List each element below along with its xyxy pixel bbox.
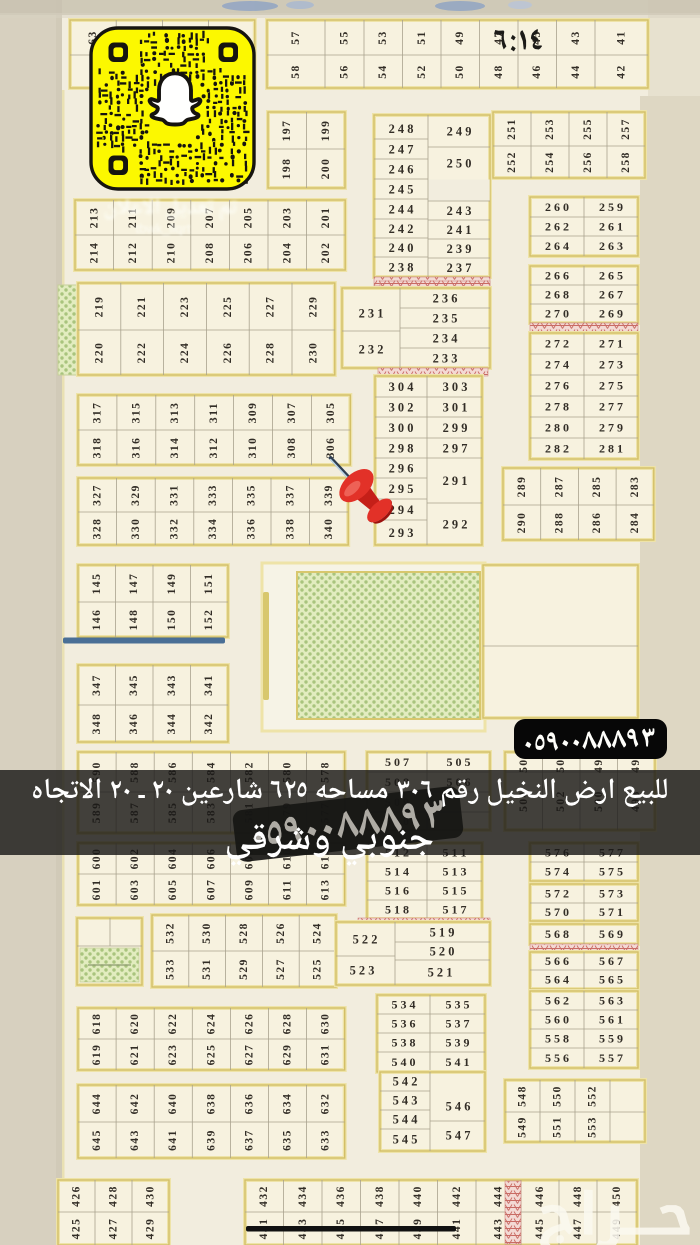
svg-text:622: 622 <box>167 1013 179 1035</box>
svg-text:229: 229 <box>307 296 319 318</box>
svg-text:636: 636 <box>243 1093 255 1115</box>
svg-text:335: 335 <box>246 484 258 506</box>
svg-text:5 7 3: 5 7 3 <box>599 887 623 901</box>
svg-text:328: 328 <box>91 518 103 540</box>
svg-text:609: 609 <box>243 879 255 901</box>
svg-text:204: 204 <box>281 242 293 264</box>
svg-text:532: 532 <box>164 922 176 944</box>
svg-text:5 4 2: 5 4 2 <box>393 1074 418 1088</box>
svg-text:2 4 3: 2 4 3 <box>447 204 472 218</box>
svg-text:5 4 1: 5 4 1 <box>446 1055 470 1069</box>
svg-text:5 6 1: 5 6 1 <box>599 1013 623 1027</box>
svg-text:525: 525 <box>312 958 324 980</box>
svg-text:5 3 7: 5 3 7 <box>446 1017 470 1031</box>
svg-text:342: 342 <box>203 713 215 735</box>
svg-text:2 6 5: 2 6 5 <box>599 269 623 283</box>
svg-text:624: 624 <box>205 1013 217 1035</box>
svg-text:5 4 7: 5 4 7 <box>446 1128 471 1142</box>
svg-text:2 7 7: 2 7 7 <box>599 400 623 414</box>
svg-text:2 3 5: 2 3 5 <box>433 311 458 325</box>
svg-text:5 5 7: 5 5 7 <box>599 1051 623 1065</box>
svg-text:44: 44 <box>570 64 582 79</box>
svg-text:603: 603 <box>129 879 141 901</box>
svg-text:227: 227 <box>265 296 277 318</box>
svg-text:641: 641 <box>167 1129 179 1151</box>
svg-text:258: 258 <box>620 151 632 173</box>
svg-text:611: 611 <box>282 879 294 900</box>
svg-text:5 2 3: 5 2 3 <box>350 963 375 977</box>
svg-text:5 7 1: 5 7 1 <box>599 905 623 919</box>
svg-text:151: 151 <box>203 573 215 595</box>
svg-text:533: 533 <box>164 958 176 980</box>
svg-text:605: 605 <box>167 879 179 901</box>
svg-text:207: 207 <box>204 207 216 229</box>
svg-text:336: 336 <box>246 518 258 540</box>
svg-text:527: 527 <box>275 958 287 980</box>
svg-text:329: 329 <box>130 484 142 506</box>
svg-text:644: 644 <box>91 1093 103 1115</box>
svg-text:225: 225 <box>222 296 234 318</box>
svg-text:43: 43 <box>570 30 582 45</box>
svg-text:5 3 6: 5 3 6 <box>392 1017 416 1031</box>
svg-text:626: 626 <box>243 1013 255 1035</box>
svg-text:5 1 7: 5 1 7 <box>443 903 467 917</box>
svg-text:528: 528 <box>238 922 250 944</box>
svg-text:425: 425 <box>71 1218 83 1240</box>
svg-text:5 4 6: 5 4 6 <box>446 1099 471 1113</box>
svg-text:339: 339 <box>323 484 335 506</box>
svg-text:2 7 2: 2 7 2 <box>545 337 569 351</box>
svg-text:618: 618 <box>91 1013 103 1035</box>
svg-text:252: 252 <box>506 151 518 173</box>
svg-text:526: 526 <box>275 922 287 944</box>
svg-text:530: 530 <box>201 922 213 944</box>
svg-text:2 9 2: 2 9 2 <box>443 517 468 531</box>
svg-text:5 0 5: 5 0 5 <box>447 755 471 769</box>
svg-text:200: 200 <box>320 158 332 180</box>
svg-text:254: 254 <box>544 151 556 173</box>
svg-text:2 4 7: 2 4 7 <box>389 142 414 156</box>
svg-text:524: 524 <box>312 922 324 944</box>
svg-text:46: 46 <box>531 64 543 79</box>
svg-text:51: 51 <box>416 30 428 45</box>
svg-text:198: 198 <box>281 158 293 180</box>
svg-text:621: 621 <box>129 1044 141 1066</box>
svg-text:2 7 5: 2 7 5 <box>599 379 623 393</box>
svg-text:313: 313 <box>169 402 181 424</box>
svg-text:147: 147 <box>128 573 140 595</box>
svg-text:289: 289 <box>516 476 528 498</box>
svg-text:5 1 5: 5 1 5 <box>443 884 467 898</box>
svg-text:284: 284 <box>629 512 641 534</box>
svg-text:5 5 6: 5 5 6 <box>545 1051 569 1065</box>
svg-text:251: 251 <box>506 118 518 140</box>
svg-text:199: 199 <box>320 120 332 142</box>
svg-text:344: 344 <box>166 713 178 735</box>
svg-text:346: 346 <box>128 713 140 735</box>
svg-text:53: 53 <box>377 30 389 45</box>
svg-text:5 6 5: 5 6 5 <box>599 973 623 987</box>
svg-text:5 2 2: 5 2 2 <box>353 932 378 946</box>
svg-text:426: 426 <box>71 1185 83 1207</box>
svg-text:5 4 5: 5 4 5 <box>393 1132 418 1146</box>
svg-text:3 0 1: 3 0 1 <box>443 400 468 414</box>
svg-text:2 3 9: 2 3 9 <box>447 242 472 256</box>
svg-text:2 7 0: 2 7 0 <box>545 307 569 321</box>
svg-text:312: 312 <box>208 437 220 459</box>
svg-text:432: 432 <box>258 1185 270 1207</box>
svg-text:3 0 0: 3 0 0 <box>389 421 414 435</box>
svg-text:3 0 3: 3 0 3 <box>443 380 468 394</box>
svg-text:256: 256 <box>582 151 594 173</box>
svg-text:146: 146 <box>91 609 103 631</box>
svg-text:5 3 9: 5 3 9 <box>446 1036 470 1050</box>
svg-text:2 7 6: 2 7 6 <box>545 379 569 393</box>
svg-text:2 9 3: 2 9 3 <box>389 526 414 540</box>
svg-text:2 3 1: 2 3 1 <box>359 306 384 320</box>
svg-text:286: 286 <box>591 512 603 534</box>
svg-text:620: 620 <box>129 1013 141 1035</box>
svg-text:5 6 2: 5 6 2 <box>545 994 569 1008</box>
svg-text:334: 334 <box>207 518 219 540</box>
svg-text:5 1 8: 5 1 8 <box>385 903 409 917</box>
svg-text:2 8 0: 2 8 0 <box>545 421 569 435</box>
svg-text:5 3 8: 5 3 8 <box>392 1036 416 1050</box>
svg-text:2 6 2: 2 6 2 <box>545 220 569 234</box>
svg-text:642: 642 <box>129 1093 141 1115</box>
svg-text:434: 434 <box>297 1185 309 1207</box>
svg-text:152: 152 <box>203 609 215 631</box>
svg-text:2 6 0: 2 6 0 <box>545 200 569 214</box>
svg-text:332: 332 <box>169 518 181 540</box>
svg-text:285: 285 <box>591 476 603 498</box>
svg-text:212: 212 <box>127 242 139 264</box>
svg-text:643: 643 <box>129 1129 141 1151</box>
svg-text:219: 219 <box>93 296 105 318</box>
svg-text:2 4 0: 2 4 0 <box>389 241 414 255</box>
svg-text:305: 305 <box>325 402 337 424</box>
svg-text:450: 450 <box>611 1185 623 1207</box>
svg-text:2 6 6: 2 6 6 <box>545 269 569 283</box>
svg-text:333: 333 <box>207 484 219 506</box>
svg-text:150: 150 <box>166 609 178 631</box>
svg-text:340: 340 <box>323 518 335 540</box>
svg-text:601: 601 <box>91 879 103 901</box>
svg-text:5 1 6: 5 1 6 <box>385 884 409 898</box>
svg-text:222: 222 <box>136 342 148 364</box>
svg-text:625: 625 <box>205 1044 217 1066</box>
svg-text:2 4 4: 2 4 4 <box>389 202 414 216</box>
svg-text:288: 288 <box>554 512 566 534</box>
svg-text:318: 318 <box>92 437 104 459</box>
svg-text:54: 54 <box>377 64 389 79</box>
svg-text:2 9 7: 2 9 7 <box>443 441 468 455</box>
svg-text:201: 201 <box>320 207 332 229</box>
svg-text:308: 308 <box>286 437 298 459</box>
svg-text:5 7 4: 5 7 4 <box>545 865 569 879</box>
svg-text:5 6 3: 5 6 3 <box>599 994 623 1008</box>
svg-text:436: 436 <box>335 1185 347 1207</box>
svg-text:430: 430 <box>145 1185 157 1207</box>
svg-text:2 6 8: 2 6 8 <box>545 288 569 302</box>
svg-text:5 6 0: 5 6 0 <box>545 1013 569 1027</box>
svg-text:56: 56 <box>339 64 351 79</box>
svg-text:230: 230 <box>307 342 319 364</box>
svg-text:442: 442 <box>451 1185 463 1207</box>
svg-text:310: 310 <box>247 437 259 459</box>
svg-text:5 1 4: 5 1 4 <box>385 865 409 879</box>
svg-text:314: 314 <box>169 437 181 459</box>
svg-text:2 3 4: 2 3 4 <box>433 331 458 345</box>
svg-text:619: 619 <box>91 1044 103 1066</box>
svg-text:5 6 4: 5 6 4 <box>545 973 569 987</box>
svg-text:220: 220 <box>93 342 105 364</box>
svg-text:630: 630 <box>320 1013 332 1035</box>
svg-text:440: 440 <box>412 1185 424 1207</box>
svg-text:5 5 8: 5 5 8 <box>545 1032 569 1046</box>
svg-text:2 7 4: 2 7 4 <box>545 358 569 372</box>
svg-text:214: 214 <box>88 242 100 264</box>
svg-text:2 9 6: 2 9 6 <box>389 461 414 475</box>
svg-text:3 0 4: 3 0 4 <box>389 380 414 394</box>
svg-text:347: 347 <box>91 674 103 696</box>
svg-text:331: 331 <box>169 484 181 506</box>
svg-text:197: 197 <box>281 120 293 142</box>
svg-text:221: 221 <box>136 296 148 318</box>
svg-text:5 6 6: 5 6 6 <box>545 954 569 968</box>
svg-text:552: 552 <box>587 1085 599 1107</box>
svg-text:42: 42 <box>616 64 628 79</box>
svg-text:228: 228 <box>265 342 277 364</box>
svg-text:50: 50 <box>454 64 466 79</box>
svg-text:550: 550 <box>552 1085 564 1107</box>
svg-text:283: 283 <box>629 476 641 498</box>
svg-text:551: 551 <box>552 1116 564 1138</box>
svg-text:338: 338 <box>284 518 296 540</box>
svg-text:2 3 7: 2 3 7 <box>447 261 472 275</box>
svg-text:337: 337 <box>284 484 296 506</box>
svg-text:49: 49 <box>454 30 466 45</box>
svg-text:41: 41 <box>616 30 628 45</box>
svg-text:444: 444 <box>493 1185 505 1207</box>
svg-text:48: 48 <box>493 64 505 79</box>
svg-text:5 4 4: 5 4 4 <box>393 1112 418 1126</box>
svg-text:2 3 2: 2 3 2 <box>359 342 384 356</box>
svg-text:5 6 8: 5 6 8 <box>545 927 569 941</box>
svg-text:52: 52 <box>416 64 428 79</box>
svg-text:5 1 9: 5 1 9 <box>430 925 455 939</box>
svg-text:2 5 9: 2 5 9 <box>599 200 623 214</box>
svg-text:5 5 9: 5 5 9 <box>599 1032 623 1046</box>
svg-text:315: 315 <box>130 402 142 424</box>
svg-text:633: 633 <box>320 1129 332 1151</box>
svg-text:631: 631 <box>320 1044 332 1066</box>
svg-text:2 7 8: 2 7 8 <box>545 400 569 414</box>
svg-text:5 3 4: 5 3 4 <box>392 998 416 1012</box>
svg-text:2 6 7: 2 6 7 <box>599 288 623 302</box>
svg-text:203: 203 <box>281 207 293 229</box>
svg-text:2 9 1: 2 9 1 <box>443 474 468 488</box>
svg-text:443: 443 <box>493 1218 505 1240</box>
svg-text:429: 429 <box>145 1218 157 1240</box>
svg-text:287: 287 <box>554 476 566 498</box>
svg-text:311: 311 <box>208 402 220 423</box>
svg-text:632: 632 <box>320 1093 332 1115</box>
svg-text:2 7 1: 2 7 1 <box>599 337 623 351</box>
svg-text:208: 208 <box>204 242 216 264</box>
svg-text:2 4 8: 2 4 8 <box>389 122 414 136</box>
svg-text:2 9 5: 2 9 5 <box>389 482 414 496</box>
svg-text:447: 447 <box>572 1218 584 1240</box>
svg-text:2 9 8: 2 9 8 <box>389 441 414 455</box>
svg-text:253: 253 <box>544 118 556 140</box>
svg-text:2 4 6: 2 4 6 <box>389 162 414 176</box>
svg-text:613: 613 <box>320 879 332 901</box>
svg-text:2 4 5: 2 4 5 <box>389 182 414 196</box>
svg-text:637: 637 <box>243 1129 255 1151</box>
svg-text:148: 148 <box>128 609 140 631</box>
svg-text:306: 306 <box>325 437 337 459</box>
svg-text:2 8 1: 2 8 1 <box>599 442 623 456</box>
svg-text:345: 345 <box>128 674 140 696</box>
svg-text:tbwk_llqrt: tbwk_llqrt <box>136 221 191 236</box>
svg-text:2 9 9: 2 9 9 <box>443 421 468 435</box>
svg-text:5 2 1: 5 2 1 <box>428 965 453 979</box>
svg-text:438: 438 <box>374 1185 386 1207</box>
svg-text:2 3 3: 2 3 3 <box>433 351 458 365</box>
svg-text:446: 446 <box>534 1185 546 1207</box>
svg-text:5 7 5: 5 7 5 <box>599 865 623 879</box>
svg-text:634: 634 <box>282 1093 294 1115</box>
svg-text:2 4 9: 2 4 9 <box>447 124 472 138</box>
svg-text:223: 223 <box>179 296 191 318</box>
svg-text:213: 213 <box>88 207 100 229</box>
svg-text:2 3 6: 2 3 6 <box>433 291 458 305</box>
svg-text:628: 628 <box>282 1013 294 1035</box>
svg-text:638: 638 <box>205 1093 217 1115</box>
svg-text:55: 55 <box>339 30 351 45</box>
svg-text:640: 640 <box>167 1093 179 1115</box>
svg-text:5 3 5: 5 3 5 <box>446 998 470 1012</box>
svg-text:549: 549 <box>517 1116 529 1138</box>
svg-text:2 4 2: 2 4 2 <box>389 222 414 236</box>
svg-text:330: 330 <box>130 518 142 540</box>
svg-text:639: 639 <box>205 1129 217 1151</box>
svg-text:629: 629 <box>282 1044 294 1066</box>
svg-text:635: 635 <box>282 1129 294 1151</box>
svg-text:548: 548 <box>517 1085 529 1107</box>
svg-text:309: 309 <box>247 402 259 424</box>
svg-text:341: 341 <box>203 674 215 696</box>
svg-text:2 6 1: 2 6 1 <box>599 220 623 234</box>
svg-text:226: 226 <box>222 342 234 364</box>
svg-text:5 4 3: 5 4 3 <box>393 1093 418 1107</box>
svg-text:3 0 2: 3 0 2 <box>389 400 414 414</box>
svg-text:5 0 7: 5 0 7 <box>385 755 409 769</box>
svg-text:316: 316 <box>130 437 142 459</box>
svg-text:5 4 0: 5 4 0 <box>392 1055 416 1069</box>
svg-text:2 7 3: 2 7 3 <box>599 358 623 372</box>
svg-text:427: 427 <box>108 1218 120 1240</box>
svg-text:2 4 1: 2 4 1 <box>447 223 472 237</box>
svg-text:5 2 0: 5 2 0 <box>430 944 455 958</box>
svg-text:205: 205 <box>243 207 255 229</box>
svg-text:2 6 3: 2 6 3 <box>599 239 623 253</box>
svg-text:2 8 2: 2 8 2 <box>545 442 569 456</box>
svg-text:343: 343 <box>166 674 178 696</box>
svg-text:5 7 0: 5 7 0 <box>545 905 569 919</box>
svg-text:2 5 0: 2 5 0 <box>447 156 472 170</box>
svg-text:2 6 9: 2 6 9 <box>599 307 623 321</box>
svg-text:145: 145 <box>91 573 103 595</box>
svg-text:2 7 9: 2 7 9 <box>599 421 623 435</box>
svg-text:5 6 9: 5 6 9 <box>599 927 623 941</box>
svg-text:255: 255 <box>582 118 594 140</box>
svg-text:529: 529 <box>238 958 250 980</box>
svg-text:531: 531 <box>201 958 213 980</box>
svg-text:5 7 2: 5 7 2 <box>545 887 569 901</box>
svg-text:210: 210 <box>166 242 178 264</box>
svg-text:202: 202 <box>320 242 332 264</box>
svg-text:448: 448 <box>572 1185 584 1207</box>
svg-text:607: 607 <box>205 879 217 901</box>
svg-text:327: 327 <box>91 484 103 506</box>
svg-text:5 1 3: 5 1 3 <box>443 865 467 879</box>
svg-text:224: 224 <box>179 342 191 364</box>
svg-text:206: 206 <box>243 242 255 264</box>
svg-text:290: 290 <box>516 512 528 534</box>
svg-text:428: 428 <box>108 1185 120 1207</box>
svg-text:149: 149 <box>166 573 178 595</box>
svg-text:57: 57 <box>290 30 302 45</box>
svg-text:2 6 4: 2 6 4 <box>545 239 569 253</box>
svg-text:645: 645 <box>91 1129 103 1151</box>
svg-text:58: 58 <box>290 64 302 79</box>
svg-text:623: 623 <box>167 1044 179 1066</box>
svg-text:627: 627 <box>243 1044 255 1066</box>
svg-text:5 6 7: 5 6 7 <box>599 954 623 968</box>
svg-text:257: 257 <box>620 118 632 140</box>
svg-text:307: 307 <box>286 402 298 424</box>
svg-text:553: 553 <box>587 1116 599 1138</box>
svg-text:2 3 8: 2 3 8 <box>389 260 414 274</box>
svg-text:348: 348 <box>91 713 103 735</box>
svg-text:317: 317 <box>92 402 104 424</box>
